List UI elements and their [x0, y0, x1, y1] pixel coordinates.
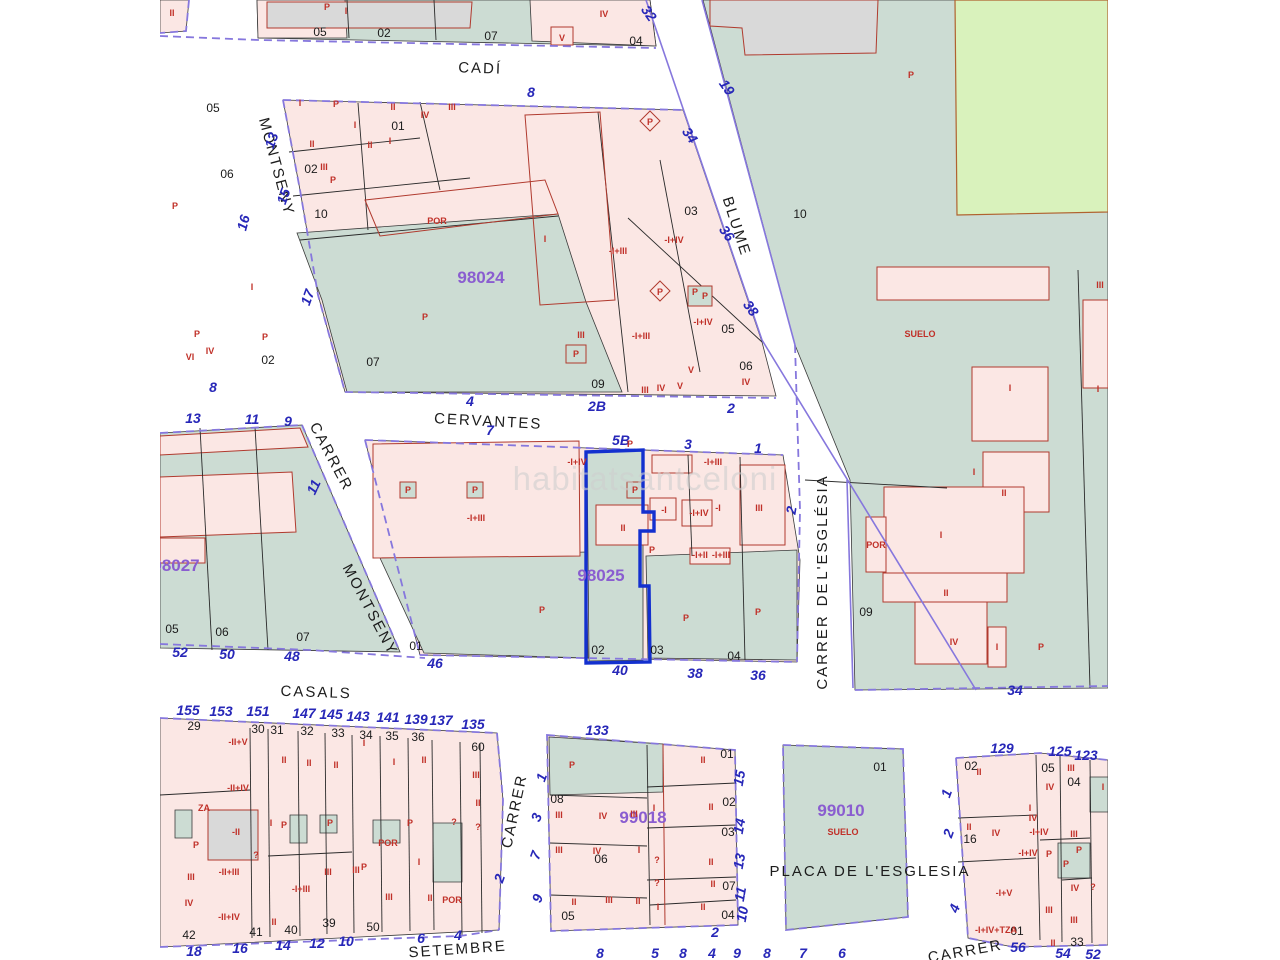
building-height-code: I	[657, 902, 660, 912]
building-height-code: P	[324, 2, 330, 12]
parcel-number: 06	[220, 167, 234, 181]
building-height-code: I	[251, 282, 254, 292]
building-height-code: II	[1001, 488, 1006, 498]
building-height-code: P	[539, 605, 545, 615]
building-height-code: -I+II	[692, 550, 708, 560]
building-height-code: -I+III	[609, 246, 627, 256]
building-height-code: II	[1050, 938, 1055, 948]
street-number: 8	[527, 84, 535, 100]
street-number: 9	[528, 892, 546, 905]
building-height-code: I	[996, 642, 999, 652]
building-height-code: I	[1102, 782, 1105, 792]
building-height-code: I	[363, 738, 366, 748]
building-height-code: II	[943, 588, 948, 598]
street-number: 3	[684, 436, 692, 452]
parcel-number: 29	[187, 719, 201, 733]
unbuilt-area	[646, 550, 797, 660]
street-number: 4	[465, 393, 474, 409]
building-height-code: P	[327, 818, 333, 828]
street-number: 36	[750, 667, 766, 683]
parcel-number: 01	[391, 119, 405, 133]
street-number: 137	[429, 712, 454, 728]
building-height-code: ?	[654, 855, 660, 865]
street-number: 153	[209, 703, 233, 719]
building-height-code: P	[908, 70, 914, 80]
building-outline	[915, 602, 987, 664]
street-name: CARRER	[927, 937, 1004, 960]
building-height-code: P	[573, 349, 579, 359]
building-height-code: -I	[715, 503, 721, 513]
building-height-code: III	[187, 872, 195, 882]
building-height-code: III	[352, 865, 360, 875]
street-number: 135	[461, 716, 485, 732]
building-height-code: III	[555, 845, 563, 855]
unbuilt-area	[783, 745, 908, 930]
street-number: 2	[710, 924, 719, 940]
building-height-code: POR	[866, 540, 886, 550]
street-number: 7	[486, 422, 495, 438]
building-height-code: -II+IV	[227, 783, 249, 793]
parcel-number: 31	[270, 723, 284, 737]
street-number: 15	[730, 769, 748, 787]
street-number: 8	[209, 379, 217, 395]
building-height-code: P	[333, 99, 339, 109]
unbuilt-area	[175, 810, 192, 838]
building-height-code: P	[281, 820, 287, 830]
street-number: 40	[611, 662, 628, 678]
building-height-code: IV	[600, 9, 609, 19]
parcel-number: 05	[1041, 761, 1055, 775]
street-number: 2	[726, 400, 735, 416]
building-height-code: ?	[253, 850, 259, 860]
street-number: 52	[1085, 946, 1101, 960]
building-height-code: II	[635, 896, 640, 906]
building-height-code: -I+IV	[567, 457, 586, 467]
street-number: 46	[426, 655, 443, 671]
unbuilt-area	[433, 823, 462, 882]
building-height-code: II	[475, 798, 480, 808]
building-height-code: III	[448, 102, 456, 112]
building-height-code: P	[1038, 642, 1044, 652]
building-height-code: -I+IV	[693, 317, 712, 327]
building-height-code: IV	[950, 637, 959, 647]
street-number: 14	[275, 937, 291, 953]
building-height-code: -I	[661, 505, 667, 515]
building-height-code: P	[683, 613, 689, 623]
building-height-code: POR	[442, 895, 462, 905]
parcel-number: 33	[331, 726, 345, 740]
building-height-code: III	[755, 503, 763, 513]
building-height-code: P	[405, 485, 411, 495]
parcel-number: 03	[721, 825, 735, 839]
street-number: 129	[990, 740, 1014, 756]
building-height-code: P	[472, 485, 478, 495]
parcel-number: 02	[591, 643, 605, 657]
cadastral-map[interactable]: CADÍBLUMEMONTSENYMONTSENYCARRERCERVANTES…	[0, 0, 1280, 960]
parcel-number: 08	[550, 792, 564, 806]
building-height-code: P	[262, 332, 268, 342]
building-height-code: ?	[451, 817, 457, 827]
parcel-number: 35	[385, 729, 399, 743]
building-outline	[972, 367, 1048, 441]
building-height-code: -I+IV	[689, 508, 708, 518]
street-number: 141	[376, 709, 400, 725]
parcel-number: 07	[722, 879, 736, 893]
parcel-number: 07	[296, 630, 310, 644]
street-number: 4	[945, 902, 963, 916]
building-height-code: ZA	[198, 803, 210, 813]
street-number: 143	[346, 708, 370, 724]
building-height-code: III	[320, 162, 328, 172]
building-height-code: P	[657, 287, 663, 297]
building-height-code: I	[653, 803, 656, 813]
building-height-code: II	[333, 760, 338, 770]
street-name: CASALS	[280, 683, 352, 702]
parcel-number: 36	[411, 730, 425, 744]
street-name: PLACA DE L'ESGLESIA	[770, 863, 971, 880]
street-number: 9	[284, 413, 292, 429]
parcel-number: 02	[304, 162, 318, 176]
watermark: habitatsantceloni	[513, 460, 778, 497]
street-number: 54	[1055, 945, 1071, 960]
parcel-number: 03	[684, 204, 698, 218]
building-height-code: I	[393, 757, 396, 767]
building-outline	[877, 267, 1049, 300]
parcel-number: 05	[721, 322, 735, 336]
building-height-code: P	[1063, 859, 1069, 869]
street-number: 10	[338, 933, 354, 949]
parcel-number: 04	[629, 34, 643, 48]
street-number: 34	[1007, 682, 1023, 698]
building-height-code: I	[638, 845, 641, 855]
block-id: 99018	[619, 808, 666, 827]
street-number: 2	[939, 827, 957, 841]
grey-building	[267, 2, 472, 28]
street-number: 1	[937, 787, 955, 800]
building-height-code: SUELO	[827, 827, 858, 837]
building-height-code: ?	[475, 822, 481, 832]
building-height-code: I	[973, 467, 976, 477]
parcel-number: 05	[313, 25, 327, 39]
building-height-code: -I+III	[292, 884, 310, 894]
building-height-code: II	[710, 879, 715, 889]
building-outline	[1083, 300, 1108, 388]
building-outline	[160, 472, 296, 537]
building-height-code: III	[577, 330, 585, 340]
building-height-code: III	[641, 385, 649, 395]
street-number: 151	[246, 703, 270, 719]
building-outline	[373, 441, 580, 558]
street-name: DE	[814, 582, 831, 607]
building-height-code: II	[708, 802, 713, 812]
building-height-code: II	[367, 140, 372, 150]
building-height-code: I	[1029, 803, 1032, 813]
building-height-code: V	[688, 365, 694, 375]
parcel-number: 04	[721, 908, 735, 922]
building-height-code: I	[1097, 384, 1100, 394]
building-height-code: P	[632, 485, 638, 495]
street-number: 11	[245, 411, 260, 427]
building-height-code: IV	[1071, 883, 1080, 893]
street-number: 56	[1010, 939, 1026, 955]
building-height-code: II	[966, 822, 971, 832]
building-height-code: I	[270, 818, 273, 828]
unbuilt-area	[1090, 777, 1108, 812]
building-height-code: I	[1009, 383, 1012, 393]
block-id: 98027	[152, 556, 199, 575]
parcel-number: 39	[322, 916, 336, 930]
parcel-number: 32	[300, 724, 314, 738]
building-height-code: IV	[593, 846, 602, 856]
street-number: 155	[176, 702, 200, 718]
building-height-code: IV	[1046, 782, 1055, 792]
parcel-number: 16	[963, 832, 977, 846]
building-height-code: P	[1076, 845, 1082, 855]
parcel-number: 03	[650, 643, 664, 657]
parcel-number: 05	[165, 622, 179, 636]
building-outline	[884, 487, 1024, 573]
street-number: 38	[687, 665, 703, 681]
building-height-code: P	[755, 607, 761, 617]
parcel-number: 34	[359, 728, 373, 742]
street-number: 13	[730, 852, 748, 870]
building-height-code: III	[555, 810, 563, 820]
street-number: 7	[799, 945, 808, 960]
street-number: 8	[763, 945, 771, 960]
block-id: 98025	[577, 566, 624, 585]
building-height-code: II	[571, 897, 576, 907]
street-number: 5	[651, 945, 659, 960]
street-number: 8	[596, 945, 604, 960]
building-height-code: -I+III	[704, 457, 722, 467]
parcel-number: 10	[793, 207, 807, 221]
building-height-code: I	[354, 120, 357, 130]
building-height-code: -II	[232, 827, 240, 837]
street-number: 17	[297, 286, 318, 307]
building-height-code: IV	[742, 377, 751, 387]
building-height-code: III	[1070, 915, 1078, 925]
building-height-code: -I+III	[632, 331, 650, 341]
building-height-code: IV	[657, 383, 666, 393]
building-height-code: VI	[186, 352, 195, 362]
street-number: 16	[233, 213, 253, 232]
block-id: 99010	[817, 801, 864, 820]
street-number: 4	[453, 927, 462, 943]
building-height-code: II	[390, 102, 395, 112]
building-height-code: I	[940, 530, 943, 540]
building-height-code: P	[627, 439, 633, 449]
building-height-code: II	[708, 857, 713, 867]
building-height-code: III	[324, 867, 332, 877]
street-number: 2B	[587, 398, 606, 414]
building-height-code: II	[309, 139, 314, 149]
building-height-code: -I+IV	[1029, 827, 1048, 837]
building-height-code: IV	[421, 110, 430, 120]
building-height-code: IV	[599, 811, 608, 821]
building-height-code: II	[421, 755, 426, 765]
street-number: 18	[186, 943, 202, 959]
building-height-code: P	[330, 175, 336, 185]
building-height-code: ?	[654, 878, 660, 888]
parcel-number: 50	[366, 920, 380, 934]
building-height-code: III	[605, 895, 613, 905]
parcel-number: 10	[314, 207, 328, 221]
building-height-code: I	[299, 98, 302, 108]
street-number: 16	[232, 940, 248, 956]
building-height-code: II	[427, 893, 432, 903]
building-height-code: -I+III	[712, 550, 730, 560]
building-height-code: P	[194, 329, 200, 339]
building-height-code: -II+V	[228, 737, 247, 747]
building-height-code: P	[193, 840, 199, 850]
building-height-code: I	[345, 6, 348, 16]
building-height-code: I	[418, 857, 421, 867]
block-id: 98024	[457, 268, 505, 287]
street-number: 6	[417, 930, 425, 946]
parcel-number: 06	[215, 625, 229, 639]
parcel-number: 07	[366, 355, 380, 369]
street-number: 9	[733, 945, 741, 960]
street-number: 10	[733, 905, 751, 923]
street-name: L'ESGLÉSIA	[814, 474, 831, 579]
parcel-number: 05	[561, 909, 575, 923]
street-name: CADÍ	[458, 59, 502, 78]
parcel-number: 07	[484, 29, 498, 43]
street-number: 50	[219, 646, 235, 662]
street-number: 147	[292, 705, 317, 721]
building-height-code: -I+III	[467, 513, 485, 523]
building-height-code: II	[281, 755, 286, 765]
building-height-code: III	[1045, 905, 1053, 915]
street-name: CARRER	[814, 614, 831, 689]
building-height-code: II	[620, 523, 625, 533]
building-height-code: II	[700, 902, 705, 912]
building-height-code: -I+IV+TZA	[975, 925, 1018, 935]
building-height-code: -II+IV	[218, 912, 240, 922]
street-number: 52	[172, 644, 188, 660]
building-height-code: III	[1067, 763, 1075, 773]
parcel-number: 01	[873, 760, 887, 774]
building-height-code: II	[700, 755, 705, 765]
building-height-code: -II+III	[219, 867, 240, 877]
building-height-code: P	[649, 545, 655, 555]
building-height-code: P	[361, 862, 367, 872]
street-number: 145	[319, 706, 343, 722]
building-height-code: P	[702, 291, 708, 301]
building-height-code: III	[1096, 280, 1104, 290]
building-height-code: ?	[1090, 882, 1096, 892]
parcel-number: 01	[720, 747, 734, 761]
building-height-code: III	[472, 770, 480, 780]
parcel-number: 02	[377, 26, 391, 40]
building-height-code: I	[389, 136, 392, 146]
building-height-code: V	[677, 381, 683, 391]
building-height-code: P	[569, 760, 575, 770]
building-height-code: P	[647, 117, 653, 127]
street-number: 133	[585, 722, 609, 738]
building-height-code: P	[422, 312, 428, 322]
parcel-number: 30	[251, 722, 265, 736]
parcel-number: 05	[206, 101, 220, 115]
building-height-code: V	[559, 33, 565, 43]
building-height-code: -I+IV	[1018, 848, 1037, 858]
building-height-code: POR	[378, 838, 398, 848]
parcel-number: 09	[859, 605, 873, 619]
building-height-code: P	[172, 201, 178, 211]
map-viewport[interactable]: CADÍBLUMEMONTSENYMONTSENYCARRERCERVANTES…	[0, 0, 1280, 960]
street-number: 1	[754, 440, 762, 456]
building-height-code: IV	[992, 828, 1001, 838]
parcel-number: 01	[409, 639, 423, 653]
building-height-code: P	[407, 818, 413, 828]
building-height-code: IV	[1029, 813, 1038, 823]
building-height-code: POR	[427, 216, 447, 226]
parcel-number: 60	[471, 740, 485, 754]
parcel-number: 06	[739, 359, 753, 373]
street-number: 7	[526, 848, 544, 862]
parcel-number: 41	[249, 925, 263, 939]
building-height-code: SUELO	[904, 329, 935, 339]
building-height-code: P	[1046, 849, 1052, 859]
street-number: 4	[707, 945, 716, 960]
building-height-code: -I+V	[996, 888, 1013, 898]
building-height-code: II	[271, 917, 276, 927]
street-number: 8	[679, 945, 687, 960]
building-height-code: P	[692, 287, 698, 297]
building-height-code: II	[976, 767, 981, 777]
parcel-number: 09	[591, 377, 605, 391]
building-height-code: IV	[206, 346, 215, 356]
unbuilt-area	[549, 737, 663, 795]
street-number: 139	[404, 711, 428, 727]
street-number: 123	[1074, 747, 1098, 763]
parcel-number: 04	[1067, 775, 1081, 789]
sports-field	[955, 0, 1108, 215]
parcel-number: 33	[1070, 935, 1084, 949]
building-height-code: II	[306, 758, 311, 768]
building-height-code: I	[544, 234, 547, 244]
building-height-code: II	[169, 8, 174, 18]
building-height-code: III	[630, 809, 638, 819]
parcel-number: 02	[261, 353, 275, 367]
building-height-code: -I+IV	[664, 235, 683, 245]
building-height-code: III	[1070, 829, 1078, 839]
parcel-number: 02	[722, 795, 736, 809]
street-number: 6	[838, 945, 846, 960]
parcel-number: 40	[284, 923, 298, 937]
street-number: 3	[527, 811, 545, 824]
building-height-code: IV	[185, 898, 194, 908]
street-number: 12	[309, 935, 325, 951]
street-number: 48	[283, 648, 300, 664]
building-height-code: III	[385, 892, 393, 902]
street-number: 125	[1048, 743, 1072, 759]
parcel-number: 42	[182, 928, 196, 942]
street-number: 13	[185, 410, 201, 426]
parcel-number: 04	[727, 649, 741, 663]
